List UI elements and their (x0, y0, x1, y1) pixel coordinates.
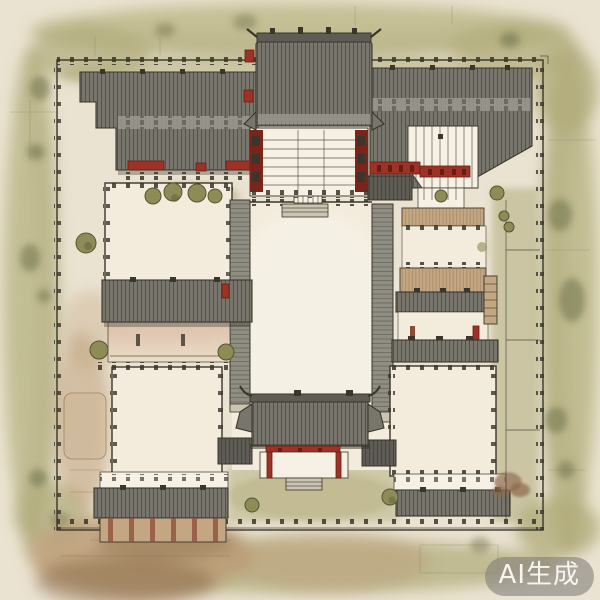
tree (499, 211, 509, 221)
tree (90, 341, 108, 359)
plan-drawing (0, 0, 600, 600)
southeast-hall (394, 474, 510, 516)
watercolor-site-plan: AI生成 (0, 0, 600, 600)
tree (435, 190, 447, 202)
east-upper-courtyard (402, 224, 486, 268)
tree (490, 186, 504, 200)
east-lower-courtyard (388, 364, 496, 477)
tree (145, 188, 161, 204)
tree (208, 189, 222, 203)
red-beam-east-of-gate (370, 162, 420, 174)
tree (188, 184, 206, 202)
tree (477, 242, 487, 252)
red-column-mark (222, 284, 229, 298)
ai-generated-label: AI生成 (499, 560, 580, 590)
west-lower-courtyard (95, 362, 232, 479)
ai-generated-badge: AI生成 (485, 557, 594, 596)
east-stair-ladder (484, 276, 497, 324)
tree (504, 222, 514, 232)
garden-bed (64, 393, 106, 459)
east-hall-roof-2 (392, 336, 498, 362)
southwest-hall (94, 472, 228, 542)
red-lintel-band (420, 166, 470, 177)
tree (218, 344, 234, 360)
east-hall-roof-1 (396, 288, 488, 312)
tree (245, 498, 259, 512)
north-gate-hall-interior (250, 128, 368, 196)
